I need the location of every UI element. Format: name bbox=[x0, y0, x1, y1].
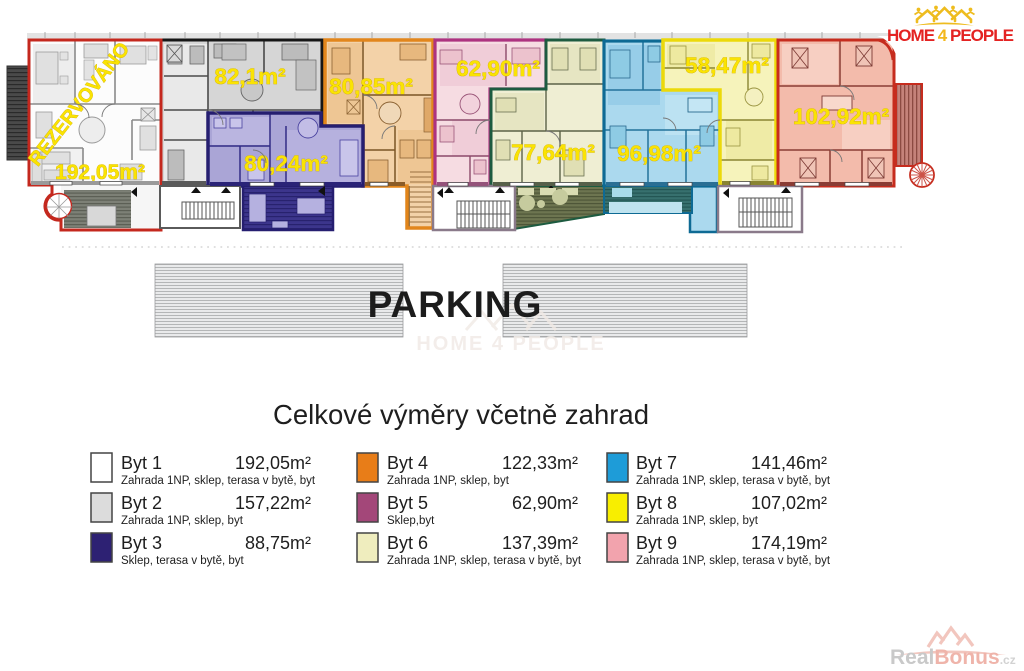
svg-text:Zahrada 1NP, sklep, byt: Zahrada 1NP, sklep, byt bbox=[121, 515, 244, 527]
svg-text:192,05m²: 192,05m² bbox=[235, 453, 311, 473]
svg-text:PARKING: PARKING bbox=[368, 284, 543, 325]
svg-text:Byt 8: Byt 8 bbox=[636, 493, 677, 513]
svg-text:Zahrada 1NP, sklep, terasa v b: Zahrada 1NP, sklep, terasa v bytě, byt bbox=[636, 475, 831, 487]
svg-text:62,90m²: 62,90m² bbox=[456, 56, 540, 81]
svg-text:137,39m²: 137,39m² bbox=[502, 533, 578, 553]
svg-text:HOME 4 PEOPLE: HOME 4 PEOPLE bbox=[887, 26, 1014, 45]
svg-text:157,22m²: 157,22m² bbox=[235, 493, 311, 513]
svg-text:Zahrada 1NP, sklep, terasa v b: Zahrada 1NP, sklep, terasa v bytě, byt bbox=[121, 475, 316, 487]
svg-text:Zahrada 1NP, sklep, terasa v b: Zahrada 1NP, sklep, terasa v bytě, byt bbox=[387, 555, 582, 567]
svg-text:174,19m²: 174,19m² bbox=[751, 533, 827, 553]
svg-text:Byt 2: Byt 2 bbox=[121, 493, 162, 513]
svg-text:Sklep, terasa v bytě, byt: Sklep, terasa v bytě, byt bbox=[121, 555, 245, 567]
svg-text:HOME 4 PEOPLE: HOME 4 PEOPLE bbox=[416, 333, 605, 355]
svg-text:80,24m²: 80,24m² bbox=[244, 151, 328, 176]
svg-text:96,98m²: 96,98m² bbox=[617, 141, 701, 166]
svg-text:58,47m²: 58,47m² bbox=[685, 53, 769, 78]
svg-text:82,1m²: 82,1m² bbox=[214, 64, 286, 89]
svg-text:RealBonus.cz: RealBonus.cz bbox=[890, 646, 1016, 669]
svg-text:80,85m²: 80,85m² bbox=[329, 74, 413, 99]
svg-text:122,33m²: 122,33m² bbox=[502, 453, 578, 473]
svg-text:Zahrada 1NP, sklep, terasa v b: Zahrada 1NP, sklep, terasa v bytě, byt bbox=[636, 555, 831, 567]
svg-text:Celkové výměry včetně zahrad: Celkové výměry včetně zahrad bbox=[273, 399, 649, 430]
svg-text:Byt 7: Byt 7 bbox=[636, 453, 677, 473]
svg-text:Byt 4: Byt 4 bbox=[387, 453, 428, 473]
svg-text:Zahrada 1NP, sklep, byt: Zahrada 1NP, sklep, byt bbox=[387, 475, 510, 487]
svg-text:102,92m²: 102,92m² bbox=[793, 104, 890, 129]
svg-text:Byt 5: Byt 5 bbox=[387, 493, 428, 513]
svg-text:Zahrada 1NP, sklep, byt: Zahrada 1NP, sklep, byt bbox=[636, 515, 759, 527]
svg-text:77,64m²: 77,64m² bbox=[511, 140, 595, 165]
svg-text:Sklep,byt: Sklep,byt bbox=[387, 515, 435, 527]
svg-text:107,02m²: 107,02m² bbox=[751, 493, 827, 513]
svg-text:Byt 3: Byt 3 bbox=[121, 533, 162, 553]
svg-text:141,46m²: 141,46m² bbox=[751, 453, 827, 473]
svg-text:Byt 6: Byt 6 bbox=[387, 533, 428, 553]
svg-text:Byt 9: Byt 9 bbox=[636, 533, 677, 553]
svg-text:62,90m²: 62,90m² bbox=[512, 493, 578, 513]
svg-text:Byt 1: Byt 1 bbox=[121, 453, 162, 473]
svg-text:88,75m²: 88,75m² bbox=[245, 533, 311, 553]
svg-text:192,05m²: 192,05m² bbox=[55, 161, 145, 184]
